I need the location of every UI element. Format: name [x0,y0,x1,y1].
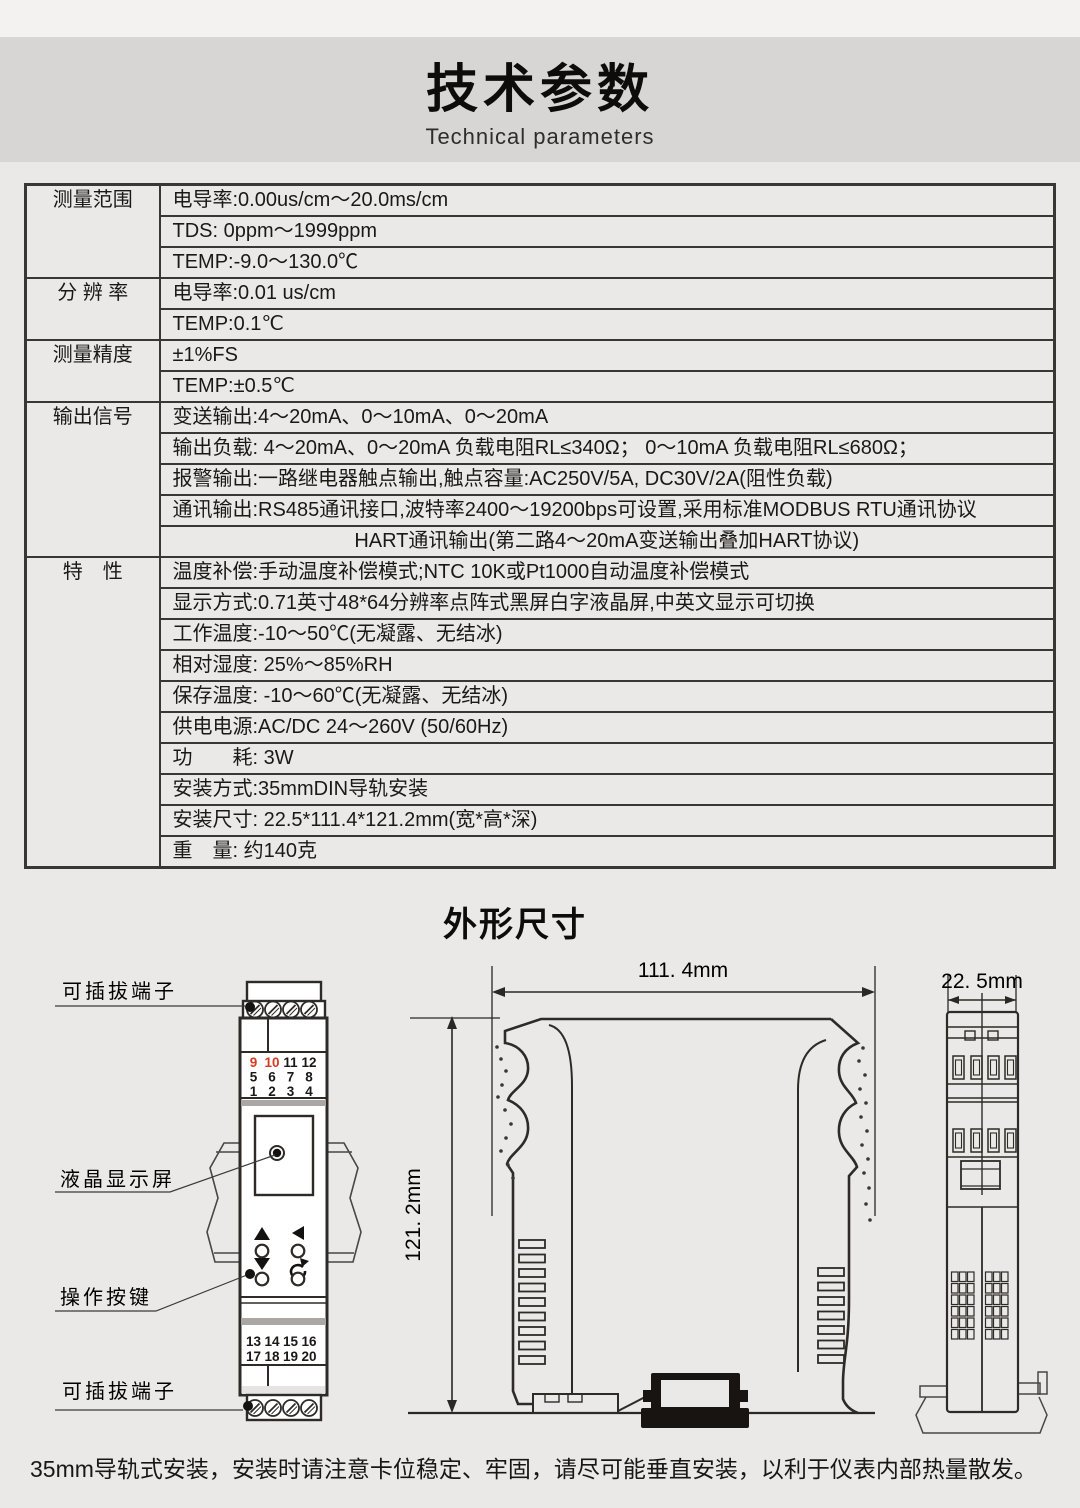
spec-row: TEMP:±0.5℃ [26,371,1055,402]
spec-row: 供电电源:AC/DC 24～260V (50/60Hz) [26,712,1055,743]
terminal-number: 16 [301,1334,317,1349]
terminal-number: 15 [283,1334,299,1349]
spec-value: 电导率:0.01 us/cm [160,278,1055,309]
spec-value: TEMP:-9.0～130.0℃ [160,247,1055,278]
din-rail-window [661,1380,729,1407]
spec-value: 功 耗: 3W [160,743,1055,774]
terminal-number: 3 [287,1084,295,1099]
spec-value: 变送输出:4～20mA、0～10mA、0～20mA [160,402,1055,433]
spec-row: 保存温度: -10～60℃(无凝露、无结冰) [26,681,1055,712]
enter-key [292,1273,305,1286]
spec-row: HART通讯输出(第二路4～20mA变送输出叠加HART协议) [26,526,1055,557]
spec-row: 显示方式:0.71英寸48*64分辨率点阵式黑屏白字液晶屏,中英文显示可切换 [26,588,1055,619]
spec-row: 通讯输出:RS485通讯接口,波特率2400～19200bps可设置,采用标准M… [26,495,1055,526]
spec-value: 重 量: 约140克 [160,836,1055,868]
spec-row: 报警输出:一路继电器触点输出,触点容量:AC250V/5A, DC30V/2A(… [26,464,1055,495]
texture-dots [495,1045,872,1222]
spec-value: TEMP:±0.5℃ [160,371,1055,402]
spec-row: 工作温度:-10～50℃(无凝露、无结冰) [26,619,1055,650]
terminal-number: 2 [268,1084,276,1099]
spec-row: 测量精度±1%FS [26,340,1055,371]
down-key [256,1273,269,1286]
spec-row: 输出负载: 4～20mA、0～20mA 负载电阻RL≤340Ω； 0～10mA … [26,433,1055,464]
terminal-number: 9 [250,1055,258,1070]
terminal-number: 19 [283,1349,298,1364]
front-view-drawing: 可插拔端子 液晶显示屏 操作按键 可插拔端子 910111256781234 1… [55,980,361,1420]
terminal-number: 6 [268,1070,276,1085]
spec-value: 显示方式:0.71英寸48*64分辨率点阵式黑屏白字液晶屏,中英文显示可切换 [160,588,1055,619]
terminal-number: 18 [264,1349,280,1364]
top-strip [0,0,1080,37]
dimensions-section-title: 外形尺寸 [0,897,1030,946]
spec-category: 分 辨 率 [26,278,160,340]
page: { "page": { "title": "技术参数", "subtitle":… [0,0,1080,1508]
callout-lcd: 液晶显示屏 [60,1168,175,1191]
spec-row: TEMP:-9.0～130.0℃ [26,247,1055,278]
spec-value: 供电电源:AC/DC 24～260V (50/60Hz) [160,712,1055,743]
terminal-number: 12 [301,1055,316,1070]
top-view-drawing: 22. 5mm [916,970,1047,1433]
terminal-number: 17 [246,1349,261,1364]
terminal-number: 20 [301,1349,316,1364]
page-subtitle: Technical parameters [0,124,1080,150]
spec-table: 测量范围电导率:0.00us/cm～20.0ms/cmTDS: 0ppm～199… [24,183,1056,869]
spec-value: 报警输出:一路继电器触点输出,触点容量:AC250V/5A, DC30V/2A(… [160,464,1055,495]
spec-category: 输出信号 [26,402,160,557]
spec-row: 安装尺寸: 22.5*111.4*121.2mm(宽*高*深) [26,805,1055,836]
spec-row: 安装方式:35mmDIN导轨安装 [26,774,1055,805]
terminal-number: 8 [305,1070,313,1085]
spec-value: 电导率:0.00us/cm～20.0ms/cm [160,185,1055,217]
spec-value: TDS: 0ppm～1999ppm [160,216,1055,247]
terminal-number: 11 [283,1055,298,1070]
spec-value: ±1%FS [160,340,1055,371]
terminal-number: 14 [264,1334,280,1349]
spec-value: 安装方式:35mmDIN导轨安装 [160,774,1055,805]
callout-bottom-terminal: 可插拔端子 [62,1380,177,1403]
spec-row: 测量范围电导率:0.00us/cm～20.0ms/cm [26,185,1055,217]
spec-row: 特 性温度补偿:手动温度补偿模式;NTC 10K或Pt1000自动温度补偿模式 [26,557,1055,588]
spec-value: 温度补偿:手动温度补偿模式;NTC 10K或Pt1000自动温度补偿模式 [160,557,1055,588]
depth-dimension-label: 22. 5mm [941,970,1023,993]
spec-row: 输出信号变送输出:4～20mA、0～10mA、0～20mA [26,402,1055,433]
width-dimension-label: 111. 4mm [638,959,728,982]
callout-keys: 操作按键 [60,1286,152,1309]
spec-category: 测量精度 [26,340,160,402]
spec-row: TDS: 0ppm～1999ppm [26,216,1055,247]
up-key [256,1245,269,1258]
terminal-number: 4 [305,1084,313,1099]
side-view-drawing: 111. 4mm 121. 2mm [402,959,875,1428]
spec-value: 工作温度:-10～50℃(无凝露、无结冰) [160,619,1055,650]
height-dimension-label: 121. 2mm [402,1168,425,1261]
dimension-lines [408,966,875,1413]
spec-row: 相对湿度: 25%～85%RH [26,650,1055,681]
spec-value: TEMP:0.1℃ [160,309,1055,340]
terminal-number: 7 [287,1070,295,1085]
spec-value: 通讯输出:RS485通讯接口,波特率2400～19200bps可设置,采用标准M… [160,495,1055,526]
spec-row: 功 耗: 3W [26,743,1055,774]
side-outline [505,1019,858,1413]
ventilation-slots [519,1240,844,1364]
terminal-number: 1 [250,1084,258,1099]
spec-row: TEMP:0.1℃ [26,309,1055,340]
page-title: 技术参数 [0,47,1080,122]
title-band: 技术参数 Technical parameters [0,37,1080,162]
spec-value: 安装尺寸: 22.5*111.4*121.2mm(宽*高*深) [160,805,1055,836]
dimension-drawings: 可插拔端子 液晶显示屏 操作按键 可插拔端子 910111256781234 1… [0,940,1080,1452]
footer-note: 35mm导轨式安装，安装时请注意卡位稳定、牢固，请尽可能垂直安装，以利于仪表内部… [30,1450,1060,1484]
spec-category: 测量范围 [26,185,160,279]
terminal-number: 13 [246,1334,262,1349]
terminal-number: 10 [264,1055,279,1070]
spec-category: 特 性 [26,557,160,868]
left-key [292,1245,305,1258]
spec-row: 重 量: 约140克 [26,836,1055,868]
spec-value: 保存温度: -10～60℃(无凝露、无结冰) [160,681,1055,712]
spec-value: 输出负载: 4～20mA、0～20mA 负载电阻RL≤340Ω； 0～10mA … [160,433,1055,464]
terminal-number: 5 [250,1070,258,1085]
spec-value: HART通讯输出(第二路4～20mA变送输出叠加HART协议) [160,526,1055,557]
spec-row: 分 辨 率电导率:0.01 us/cm [26,278,1055,309]
callout-top-terminal: 可插拔端子 [62,980,177,1003]
spec-value: 相对湿度: 25%～85%RH [160,650,1055,681]
spec-table-grid: 测量范围电导率:0.00us/cm～20.0ms/cmTDS: 0ppm～199… [24,183,1056,869]
